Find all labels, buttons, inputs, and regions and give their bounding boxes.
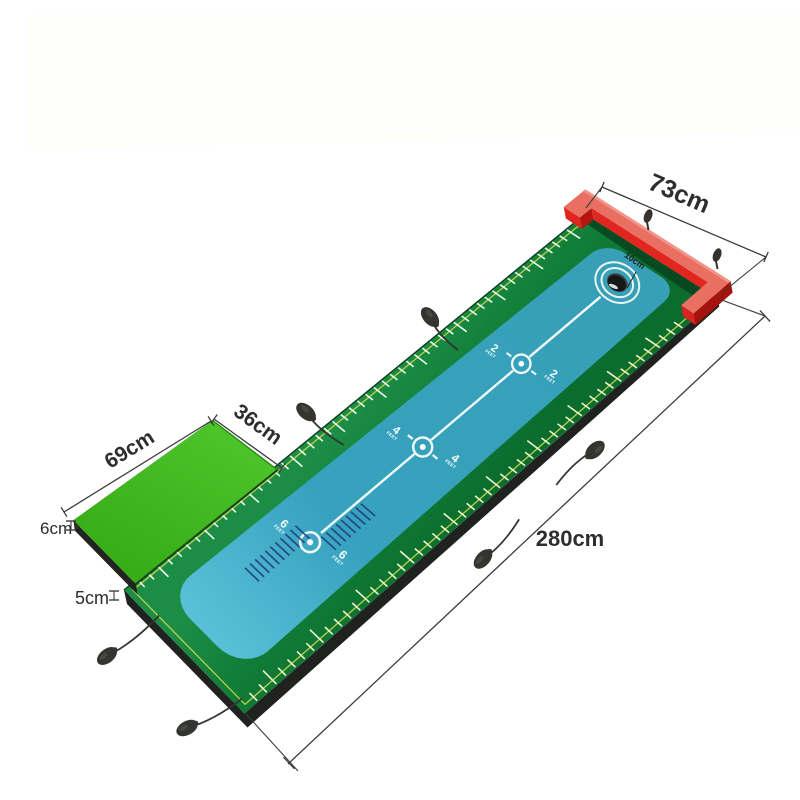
svg-text:5cm: 5cm <box>75 588 109 608</box>
svg-text:6cm: 6cm <box>40 519 72 538</box>
svg-text:280cm: 280cm <box>536 526 605 551</box>
